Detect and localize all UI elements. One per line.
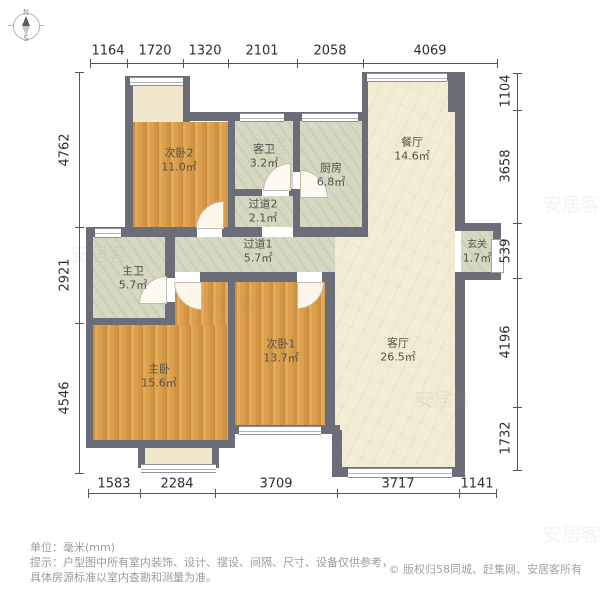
room-area: 3.2㎡ <box>250 157 279 171</box>
dimension-label-right: 4196 <box>499 325 514 358</box>
dim-tick <box>228 59 229 68</box>
room-name: 餐厅 <box>394 136 430 150</box>
wall-segment <box>222 227 262 237</box>
room-area: 5.7㎡ <box>119 279 148 293</box>
dimension-label-bottom: 1583 <box>97 477 130 492</box>
dim-line-right <box>517 73 518 471</box>
wall-segment <box>332 430 342 470</box>
dim-tick <box>183 59 184 68</box>
room-area: 6.8㎡ <box>317 176 346 190</box>
room-label-bath1: 主卫 5.7㎡ <box>119 265 148 294</box>
room-area: 26.5㎡ <box>380 351 416 365</box>
dim-tick <box>215 489 216 498</box>
room-name: 客厅 <box>380 337 416 351</box>
dim-tick <box>75 473 84 474</box>
wall-segment <box>86 318 175 325</box>
room-area: 1.7㎡ <box>463 251 492 265</box>
dim-line-bottom <box>88 493 497 494</box>
dimension-label-bottom: 1141 <box>460 477 493 492</box>
dimension-label-bottom: 3717 <box>381 477 414 492</box>
dim-tick <box>513 470 522 471</box>
watermark-text: 安居客 <box>543 190 600 217</box>
room-fill-balcony-top <box>133 85 183 122</box>
compass-tick-west <box>8 25 13 26</box>
dimension-label-left: 2921 <box>58 258 73 291</box>
dim-tick <box>513 407 522 408</box>
wall-segment <box>228 282 235 440</box>
dimension-label-bottom: 3709 <box>259 477 292 492</box>
room-name: 次卧1 <box>263 338 299 352</box>
room-label-master: 主卧 15.6㎡ <box>141 363 177 392</box>
room-area: 2.1㎡ <box>249 212 278 226</box>
window-kitchen <box>302 113 358 122</box>
wall-segment <box>455 280 465 477</box>
room-name: 主卧 <box>141 363 177 377</box>
compass-needle-north <box>22 16 30 26</box>
room-name: 主卫 <box>119 265 148 279</box>
room-name: 玄关 <box>463 238 492 251</box>
wall-segment <box>293 120 300 172</box>
dim-tick <box>513 73 522 74</box>
dimension-label-right: 3658 <box>499 149 514 182</box>
dimension-label-right: 539 <box>499 239 514 264</box>
wall-segment <box>228 112 235 237</box>
compass-icon: N S <box>10 9 42 43</box>
dimension-label-right: 1732 <box>499 421 514 454</box>
wall-segment <box>86 237 93 448</box>
room-name: 次卧2 <box>161 147 197 161</box>
dimension-label-top: 2058 <box>313 44 346 59</box>
copyright-note: © 版权归58同城、赶集网、安居客所有 <box>389 561 583 577</box>
room-label-entry: 玄关 1.7㎡ <box>463 238 492 265</box>
dimension-label-top: 1720 <box>138 44 171 59</box>
wall-segment <box>362 81 368 237</box>
room-area: 11.0㎡ <box>161 161 197 175</box>
wall-segment <box>125 76 133 237</box>
wall-segment <box>228 189 262 196</box>
hint-note-line1: 提示：户型图中所有室内装饰、设计、摆设、间隔、尺寸、设备仅供参考， <box>30 554 393 570</box>
dim-tick <box>297 59 298 68</box>
room-label-bath2: 客卫 3.2㎡ <box>250 143 279 172</box>
dim-tick <box>513 278 522 279</box>
dimension-label-right: 1104 <box>499 74 514 107</box>
wall-segment <box>293 227 368 237</box>
window-bedroom1 <box>239 426 321 435</box>
floor-plan: N S <box>0 0 600 600</box>
room-area: 15.6㎡ <box>141 377 177 391</box>
dim-tick <box>75 323 84 324</box>
room-label-bedroom2: 次卧2 11.0㎡ <box>161 147 197 176</box>
dimension-label-top: 1320 <box>188 44 221 59</box>
room-area: 14.6㎡ <box>394 150 430 164</box>
dim-line-left <box>79 72 80 474</box>
dim-tick <box>75 72 84 73</box>
window-dining <box>367 73 447 82</box>
hint-note-line2: 具体房源标准以室内查勘和测量为准。 <box>30 569 217 585</box>
room-label-dining: 餐厅 14.6㎡ <box>394 136 430 165</box>
room-name: 客卫 <box>250 143 279 157</box>
dimension-label-top: 2101 <box>245 44 278 59</box>
room-area: 5.7㎡ <box>244 252 273 266</box>
unit-note: 单位：毫米(mm) <box>30 539 115 555</box>
wall-segment <box>165 233 175 278</box>
window-bath1 <box>95 228 121 238</box>
watermark-text: 安居客 <box>543 520 600 547</box>
dim-tick <box>496 489 497 498</box>
window-bath2 <box>240 113 284 122</box>
room-name: 厨房 <box>317 162 346 176</box>
wall-segment <box>455 112 465 223</box>
dim-tick <box>363 59 364 68</box>
wall-segment <box>325 272 335 433</box>
dimension-label-top: 1164 <box>91 44 124 59</box>
wall-segment <box>455 272 501 280</box>
room-name: 过道2 <box>249 198 278 212</box>
dim-tick <box>337 489 338 498</box>
room-label-kitchen: 厨房 6.8㎡ <box>317 162 346 191</box>
dim-tick <box>75 227 84 228</box>
dim-line-top <box>90 63 498 64</box>
room-area: 13.7㎡ <box>263 352 299 366</box>
dim-tick <box>90 59 91 68</box>
wall-segment <box>200 272 297 282</box>
dim-tick <box>140 489 141 498</box>
room-name: 过道1 <box>244 238 273 252</box>
compass-south-label: S <box>23 35 28 43</box>
dim-tick <box>88 489 89 498</box>
dimension-label-left: 4762 <box>58 133 73 166</box>
window-balcony-top <box>130 77 183 86</box>
room-label-hallway1: 过道1 5.7㎡ <box>244 238 273 267</box>
wall-segment <box>448 72 465 112</box>
dim-tick <box>513 223 522 224</box>
room-fill-balcony-bottom <box>145 446 212 466</box>
dimension-label-bottom: 2284 <box>160 477 193 492</box>
room-label-hallway2: 过道2 2.1㎡ <box>249 198 278 227</box>
dimension-label-left: 4546 <box>58 381 73 414</box>
dim-tick <box>513 110 522 111</box>
compass-tick-east <box>39 25 44 26</box>
dimension-label-top: 4069 <box>413 44 446 59</box>
dim-tick <box>497 59 498 68</box>
room-label-living: 客厅 26.5㎡ <box>380 337 416 366</box>
window-balcony-bottom <box>141 464 216 473</box>
dim-tick <box>127 59 128 68</box>
room-label-bedroom1: 次卧1 13.7㎡ <box>263 338 299 367</box>
